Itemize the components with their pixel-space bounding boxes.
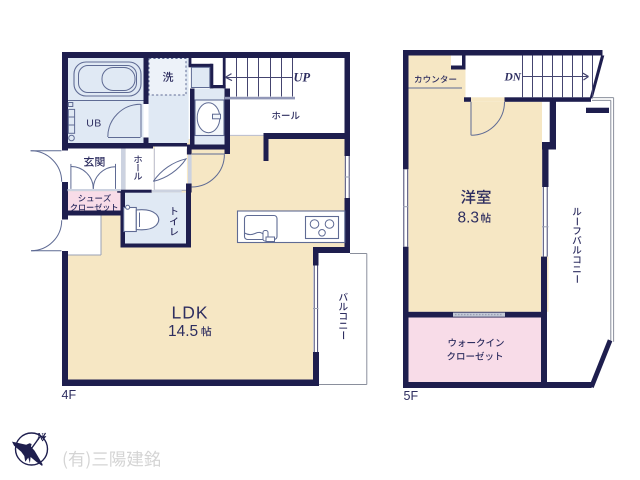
svg-text:UB: UB [86,117,102,129]
svg-text:8.3: 8.3 [458,210,480,227]
svg-text:LDK: LDK [171,303,208,323]
svg-text:UP: UP [294,71,311,85]
svg-text:DN: DN [504,72,522,84]
svg-text:5F: 5F [404,389,419,403]
svg-text:4F: 4F [62,388,77,402]
svg-text:14.5: 14.5 [168,323,198,340]
